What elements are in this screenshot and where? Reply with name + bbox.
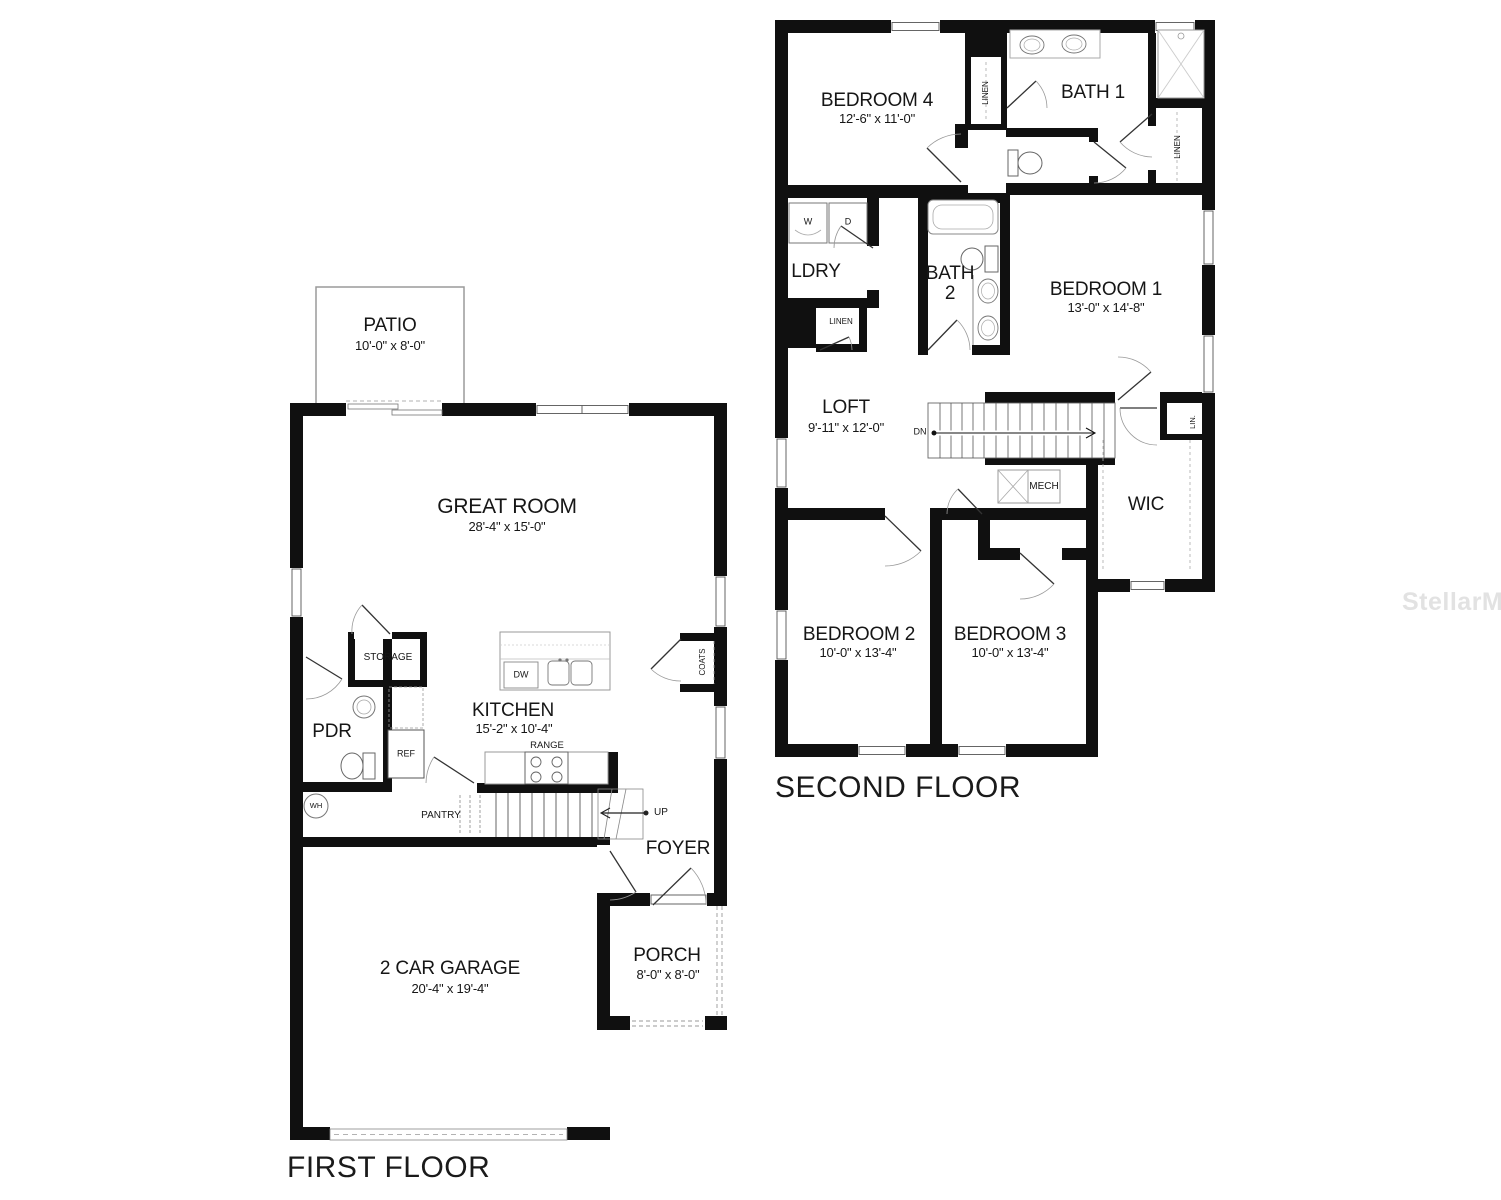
room-dims-garage: 20'-4" x 19'-4" (412, 982, 489, 996)
fixture-label-ref: REF (397, 749, 415, 758)
pdr-sink-icon (353, 696, 375, 718)
pdr-toilet-icon (341, 753, 375, 779)
cabinet-dashed (389, 687, 423, 728)
room-label-garage: 2 CAR GARAGE (380, 959, 520, 979)
closet-label-lin: LIN. (1189, 415, 1197, 429)
room-dims-bedroom3: 10'-0" x 13'-4" (972, 646, 1049, 660)
room-dims-loft: 9'-11" x 12'-0" (808, 421, 884, 435)
room-label-bedroom1: BEDROOM 1 (1050, 280, 1162, 300)
room-label-patio: PATIO (363, 316, 416, 336)
room-label-pantry: PANTRY (421, 811, 461, 822)
room-dims-patio: 10'-0" x 8'-0" (355, 339, 425, 353)
room-label-ldry: LDRY (791, 262, 841, 282)
stairs-up (496, 789, 649, 839)
first-floor-title: FIRST FLOOR (287, 1151, 490, 1185)
room-label-mech: MECH (1029, 482, 1058, 493)
kitchen-counter (485, 752, 608, 784)
closet-label-linen-ldry: LINEN (829, 318, 853, 326)
closet-label-linen-hall: LINEN (982, 81, 990, 105)
room-label-storage: STORAGE (364, 653, 413, 664)
room-label-pdr: PDR (312, 722, 352, 742)
room-label-loft: LOFT (822, 398, 870, 418)
fixture-label-dw: DW (514, 670, 529, 679)
room-label-porch: PORCH (633, 946, 701, 966)
fixture-label-range: RANGE (530, 741, 564, 751)
stairs-label-up: UP (654, 808, 668, 819)
room-label-great-room: GREAT ROOM (437, 496, 577, 518)
stairs-down (928, 403, 1115, 458)
bath1-vanity (1010, 30, 1100, 58)
stairs-label-dn: DN (914, 427, 927, 436)
room-label-bedroom3: BEDROOM 3 (954, 625, 1066, 645)
fixture-label-wh: WH (310, 802, 323, 810)
second-floor-title: SECOND FLOOR (775, 771, 1021, 805)
room-dims-porch: 8'-0" x 8'-0" (637, 968, 700, 982)
room-label-wic: WIC (1128, 495, 1164, 515)
room-dims-bedroom2: 10'-0" x 13'-4" (820, 646, 897, 660)
pantry-shelves (460, 795, 480, 835)
watermark: StellarMLS (1402, 588, 1501, 617)
room-label-kitchen: KITCHEN (472, 701, 554, 721)
room-dims-bedroom1: 13'-0" x 14'-8" (1068, 301, 1145, 315)
range-icon (525, 752, 568, 784)
bath1-toilet-icon (1008, 150, 1042, 176)
room-label-bath1: BATH 1 (1061, 83, 1125, 103)
room-label-bedroom2: BEDROOM 2 (803, 625, 915, 645)
fixture-label-washer: W (804, 217, 813, 226)
shower-icon (1158, 30, 1204, 98)
room-label-bedroom4: BEDROOM 4 (821, 91, 933, 111)
closet-label-linen-bath1: LINEN (1174, 135, 1182, 159)
room-dims-bedroom4: 12'-6" x 11'-0" (839, 112, 915, 126)
room-dims-great-room: 28'-4" x 15'-0" (469, 520, 546, 534)
room-label-foyer: FOYER (646, 839, 710, 859)
room-dims-kitchen: 15'-2" x 10'-4" (476, 722, 553, 736)
floor-plan-canvas: PATIO 10'-0" x 8'-0" GREAT ROOM 28'-4" x… (0, 0, 1501, 1200)
garage-door-icon (330, 1129, 567, 1140)
room-label-coats: COATS (699, 649, 707, 676)
fixture-label-dryer: D (845, 217, 852, 226)
room-label-bath2: BATH 2 (919, 264, 981, 304)
floor-plan-drawing (0, 0, 1501, 1200)
tub-icon (928, 200, 998, 234)
kitchen-island (500, 632, 610, 690)
